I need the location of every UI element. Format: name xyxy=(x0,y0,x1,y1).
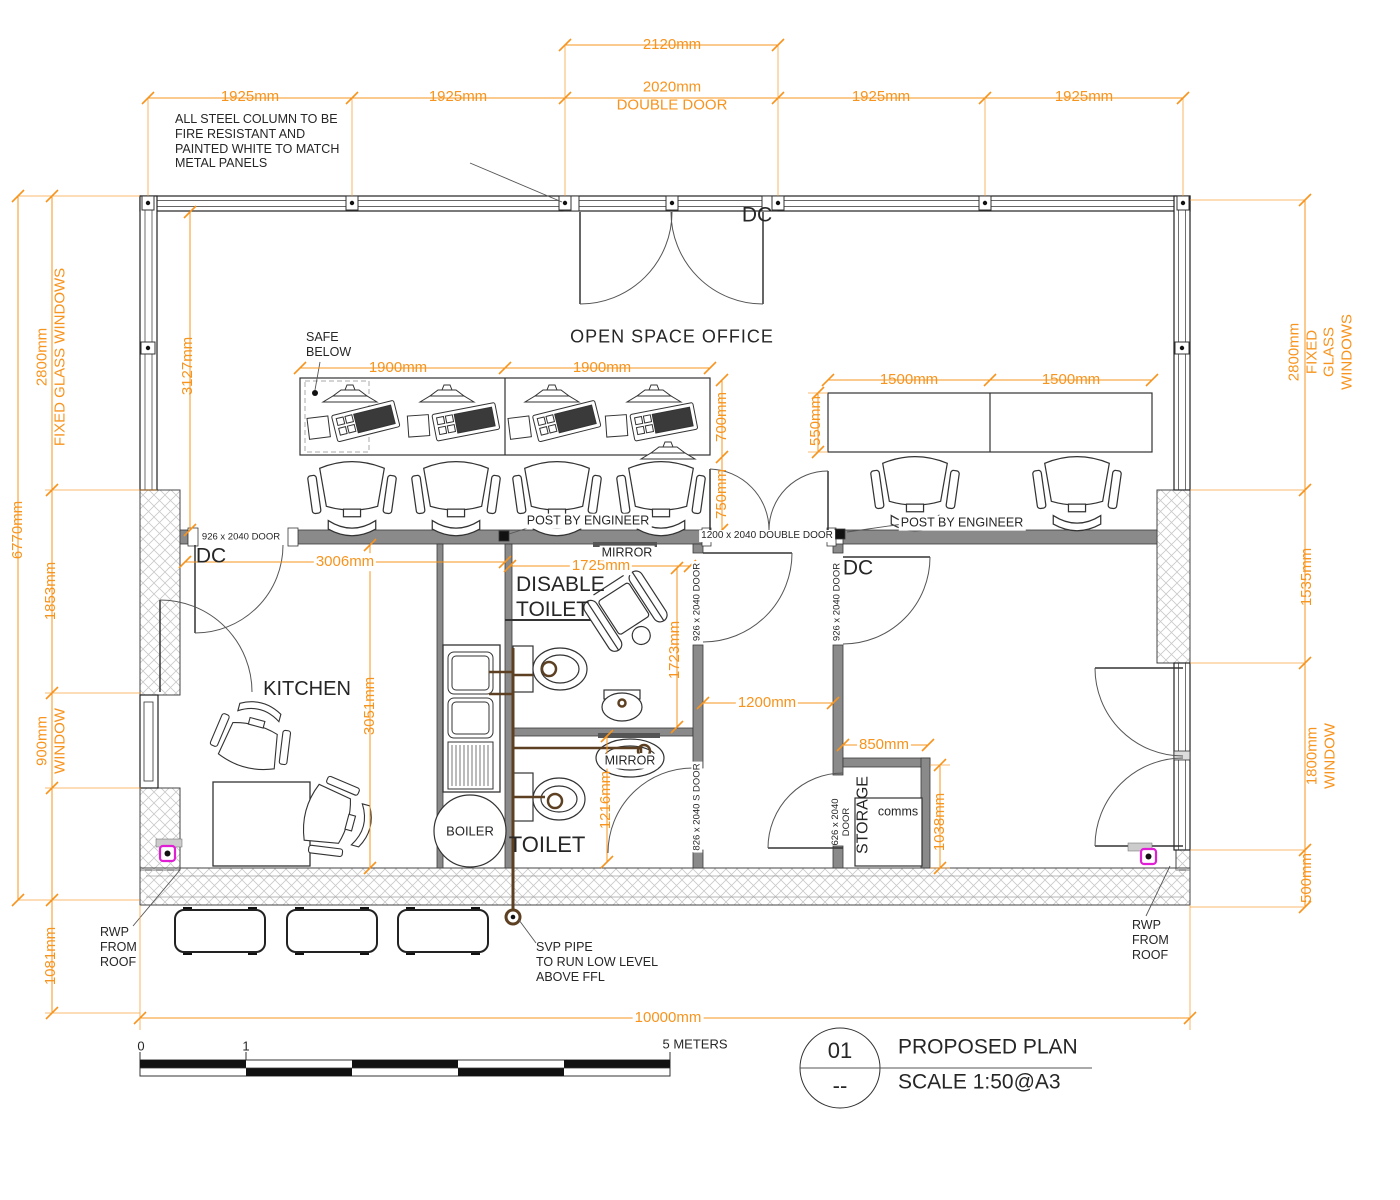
door-label-disable: 926 x 2040 DOOR xyxy=(691,561,702,643)
safe-below-note: SAFE BELOW xyxy=(306,330,351,360)
dim-1925-3: 1925mm xyxy=(852,88,910,106)
scalebar-one: 1 xyxy=(242,1038,249,1053)
room-office: OPEN SPACE OFFICE xyxy=(570,326,774,347)
dim-700: 700mm xyxy=(713,392,731,442)
dim-right-1800: 1800mm WINDOW xyxy=(1303,723,1338,789)
kitchen-furniture xyxy=(213,782,310,866)
door-label-kitchen: 926 x 2040 DOOR xyxy=(200,531,282,542)
mirror-label-b: MIRROR xyxy=(603,754,658,769)
post-note-right: POST BY ENGINEER xyxy=(899,516,1026,531)
dim-750: 750mm xyxy=(713,469,731,519)
dc-label-right: DC xyxy=(843,557,873,582)
room-toilet: TOILET xyxy=(509,832,586,858)
drawing-title: PROPOSED PLAN xyxy=(898,1036,1078,1061)
room-kitchen: KITCHEN xyxy=(263,678,351,702)
dim-1900-1: 1900mm xyxy=(369,359,427,377)
dim-1723: 1723mm xyxy=(666,621,684,679)
rwp-note-left: RWP FROM ROOF xyxy=(100,925,137,969)
top-double-door-label: 2020mm DOUBLE DOOR xyxy=(617,78,728,113)
glazing xyxy=(140,196,1190,850)
dc-label-top: DC xyxy=(742,204,772,229)
dim-1535: 1535mm xyxy=(1298,548,1316,606)
dim-1216: 1216mm xyxy=(597,771,615,829)
dim-550: 550mm xyxy=(807,396,825,446)
post-note-left: POST BY ENGINEER xyxy=(525,514,652,529)
kitchen-sink-counter xyxy=(443,645,500,792)
door-label-right-room: 926 x 2040 DOOR xyxy=(831,561,842,643)
dim-left-2800: 2800mm FIXED GLASS WINDOWS xyxy=(33,268,68,446)
room-disable-toilet: DISABLE TOILET xyxy=(516,573,605,623)
dim-1925-4: 1925mm xyxy=(1055,88,1113,106)
dim-2120: 2120mm xyxy=(643,36,701,54)
door-label-corridor: 1200 x 2040 DOUBLE DOOR xyxy=(699,530,835,542)
dim-1038: 1038mm xyxy=(931,793,949,851)
drawing-revision: -- xyxy=(833,1073,848,1099)
steel-column-note: ALL STEEL COLUMN TO BE FIRE RESISTANT AN… xyxy=(175,112,339,171)
dim-10000: 10000mm xyxy=(633,1009,704,1027)
dim-850: 850mm xyxy=(857,736,911,754)
dim-500: 500mm xyxy=(1298,853,1316,903)
mirror-label-a: MIRROR xyxy=(600,546,655,561)
dim-right-2800: 2800mm FIXED GLASS WINDOWS xyxy=(1286,313,1357,392)
engineer-post-left xyxy=(499,531,509,541)
dim-1925-2: 1925mm xyxy=(429,88,487,106)
dim-3006: 3006mm xyxy=(314,553,376,571)
dim-1081: 1081mm xyxy=(42,927,60,985)
benches xyxy=(175,907,488,955)
dc-label-kitchen: DC xyxy=(196,545,226,570)
door-label-toilet-s: 826 x 2040 S DOOR xyxy=(691,761,702,852)
door-label-storage: 626 x 2040 DOOR xyxy=(830,798,852,845)
rwp-note-right: RWP FROM ROOF xyxy=(1132,918,1169,962)
svp-note: SVP PIPE TO RUN LOW LEVEL ABOVE FFL xyxy=(536,940,658,984)
dim-3127: 3127mm xyxy=(179,337,197,395)
room-storage: STORAGE xyxy=(855,776,874,854)
dim-6770: 6770mm xyxy=(9,501,27,559)
dim-1500-1: 1500mm xyxy=(880,371,938,389)
drawing-scale: SCALE 1:50@A3 xyxy=(898,1071,1061,1096)
dim-1925-1: 1925mm xyxy=(221,88,279,106)
scale-bar xyxy=(140,1052,670,1076)
dim-left-900: 900mm WINDOW xyxy=(33,708,68,774)
engineer-post-right xyxy=(835,529,845,539)
scalebar-end: 5 METERS xyxy=(662,1036,727,1051)
dim-1900-2: 1900mm xyxy=(573,359,631,377)
dim-3051: 3051mm xyxy=(361,677,379,735)
floor-plan-sheet: 2120mm 1925mm 1925mm 2020mm DOUBLE DOOR … xyxy=(0,0,1400,1200)
room-comms: comms xyxy=(878,805,918,820)
dim-1853: 1853mm xyxy=(42,562,60,620)
drawing-number: 01 xyxy=(828,1038,852,1064)
kitchen-chair-1 xyxy=(206,693,300,778)
scalebar-zero: 0 xyxy=(137,1038,144,1053)
dim-1200: 1200mm xyxy=(736,694,798,712)
dim-1500-2: 1500mm xyxy=(1042,371,1100,389)
boiler-label: BOILER xyxy=(446,823,494,838)
